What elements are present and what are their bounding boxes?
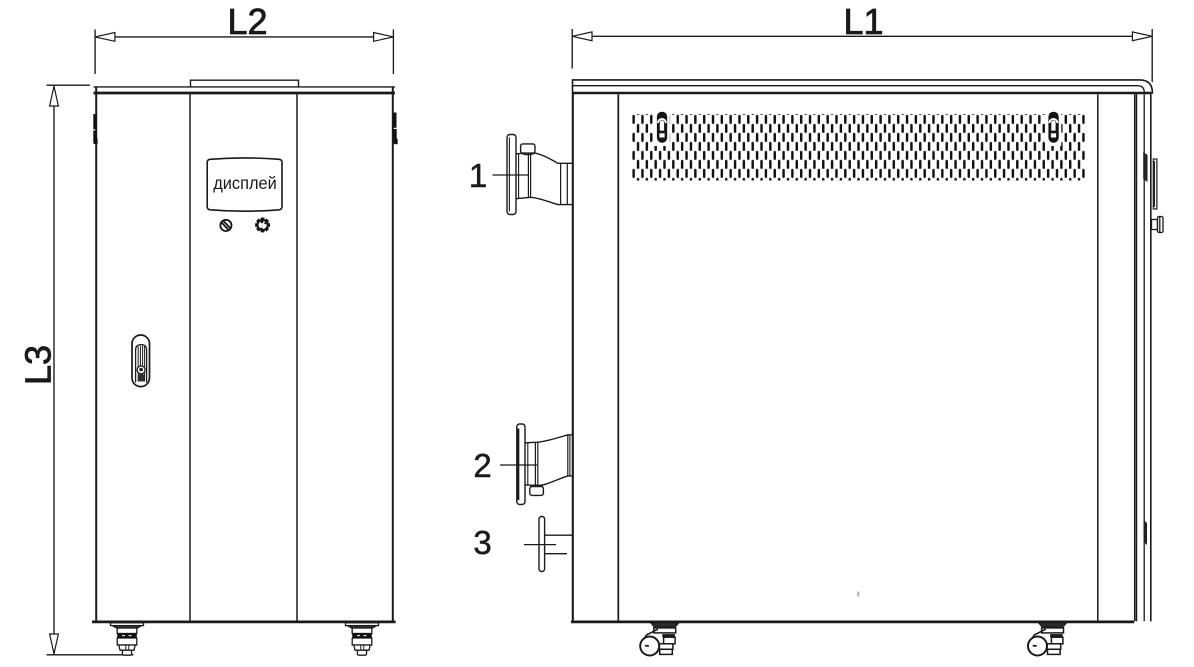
svg-text:L1: L1 bbox=[843, 1, 883, 42]
svg-text:3: 3 bbox=[473, 524, 491, 561]
svg-text:L3: L3 bbox=[18, 345, 59, 385]
svg-text:1: 1 bbox=[469, 157, 487, 194]
svg-text:L2: L2 bbox=[227, 1, 267, 42]
svg-text:дисплей: дисплей bbox=[213, 173, 277, 193]
svg-text:2: 2 bbox=[473, 447, 491, 484]
